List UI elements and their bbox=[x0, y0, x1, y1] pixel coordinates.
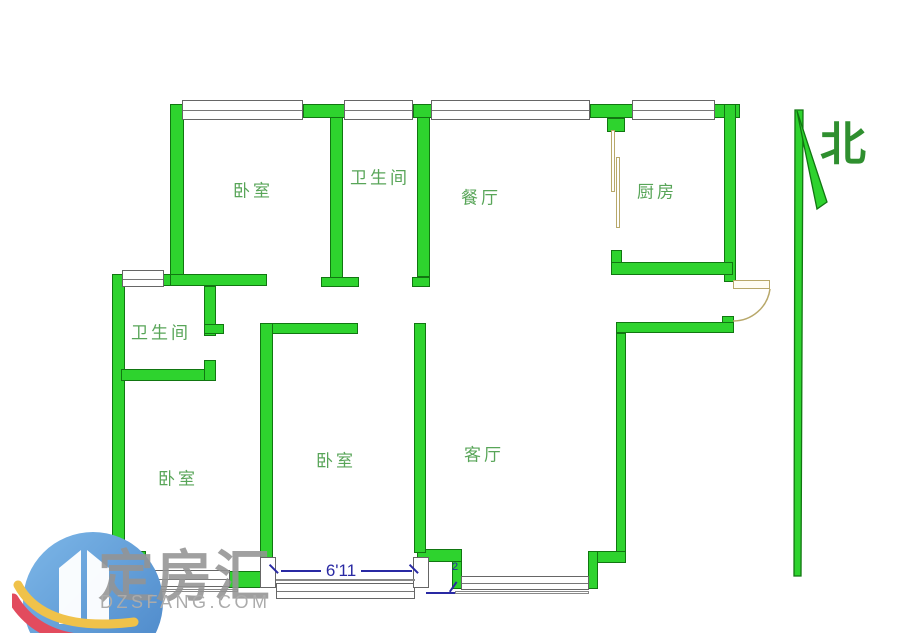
balcony-door-jamb bbox=[413, 557, 429, 588]
wall-segment bbox=[607, 118, 625, 132]
window bbox=[182, 100, 303, 120]
dimension-text: 6'11 bbox=[318, 561, 364, 581]
entry-door-leaf bbox=[733, 280, 770, 289]
dimension-line-right bbox=[361, 570, 412, 572]
wall-segment bbox=[616, 333, 626, 554]
wall-segment bbox=[611, 262, 733, 275]
floor-plan-canvas: 卧室 卫生间 餐厅 厨房 卫生间 卧室 卧室 客厅 北 6'11 2 定房汇 D bbox=[0, 0, 900, 633]
wall-segment bbox=[121, 369, 216, 381]
room-label-bedroom-left: 卧室 bbox=[158, 465, 198, 490]
window-mullion bbox=[462, 583, 588, 584]
partial-dimension-line bbox=[426, 592, 455, 594]
window-mullion bbox=[123, 279, 163, 280]
partial-dimension-mark: 2 bbox=[452, 561, 458, 573]
wall-segment bbox=[112, 274, 125, 564]
room-label-kitchen: 厨房 bbox=[637, 178, 677, 203]
wall-segment bbox=[303, 104, 345, 118]
wall-segment bbox=[588, 551, 598, 589]
window bbox=[344, 100, 413, 120]
room-label-living: 客厅 bbox=[464, 441, 504, 466]
north-arrow-shaft bbox=[794, 110, 803, 576]
room-label-bedroom-middle: 卧室 bbox=[316, 447, 356, 472]
window bbox=[431, 100, 590, 120]
entry-door-arc bbox=[733, 289, 770, 321]
wall-segment bbox=[330, 117, 343, 279]
window-mullion bbox=[277, 591, 414, 592]
wall-segment bbox=[170, 274, 267, 286]
wall-segment bbox=[413, 104, 432, 118]
watermark-domain: DZSFANG.COM bbox=[100, 592, 271, 613]
north-label: 北 bbox=[820, 108, 866, 174]
window-mullion bbox=[345, 110, 412, 111]
room-label-bathroom-left: 卫生间 bbox=[131, 319, 191, 344]
window-mullion bbox=[633, 110, 714, 111]
dimension-line-left bbox=[281, 570, 321, 572]
wall-segment bbox=[590, 104, 633, 118]
wall-segment bbox=[611, 250, 622, 263]
wall-segment bbox=[204, 360, 216, 381]
window-mullion bbox=[432, 110, 589, 111]
window-sill-line bbox=[455, 591, 589, 594]
wall-segment bbox=[616, 322, 734, 333]
room-label-bathroom-top: 卫生间 bbox=[350, 164, 410, 189]
wall-segment bbox=[417, 117, 430, 277]
wall-segment bbox=[321, 277, 359, 287]
wall-segment bbox=[204, 324, 224, 334]
window bbox=[122, 270, 164, 287]
wall-segment bbox=[260, 323, 273, 564]
window-mullion bbox=[183, 110, 302, 111]
sliding-door-leaf bbox=[611, 130, 615, 192]
wall-segment bbox=[412, 277, 430, 287]
wall-segment bbox=[414, 323, 426, 553]
window bbox=[632, 100, 715, 120]
room-label-bedroom-top: 卧室 bbox=[233, 177, 273, 202]
window bbox=[461, 576, 589, 590]
wall-segment bbox=[260, 323, 358, 334]
wall-segment bbox=[724, 104, 736, 282]
sliding-door-leaf bbox=[616, 157, 620, 228]
window bbox=[276, 583, 415, 599]
wall-segment bbox=[170, 104, 184, 286]
room-label-dining: 餐厅 bbox=[461, 184, 501, 209]
